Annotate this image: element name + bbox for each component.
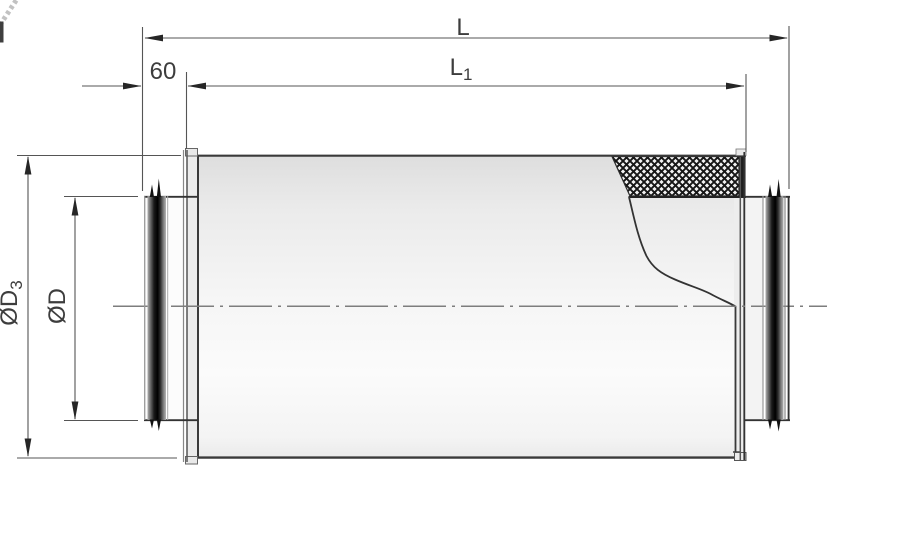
label-L: L: [456, 14, 469, 41]
insulation-hatch: [612, 152, 746, 198]
left-spigot-rib-band: [148, 196, 167, 420]
right-spigot-spike: [777, 420, 781, 432]
left-spigot-spike: [157, 420, 161, 432]
hatch-area: [612, 157, 739, 197]
dimension-casing-length: L1: [187, 54, 747, 152]
arrow-down-icon: [25, 439, 32, 458]
left-spigot-spike: [150, 185, 154, 198]
label-OD3: ØD3: [0, 280, 26, 325]
artifact-hatch-fragment: [0, 0, 17, 25]
corner-artifact: [0, 0, 17, 43]
label-L1: L1: [450, 54, 473, 84]
arrow-right-icon: [123, 83, 142, 90]
right-spigot-spike: [768, 420, 772, 430]
dimension-duct-diameter: ØD: [44, 197, 138, 421]
artifact-bar: [0, 22, 4, 43]
silencer-technical-drawing: L L1 60 ØD3 ØD: [0, 0, 900, 536]
casing-fill: [198, 156, 734, 458]
right-spigot-spike: [768, 185, 772, 198]
arrow-down-icon: [72, 402, 79, 421]
arrow-left-icon: [188, 83, 207, 90]
arrow-up-icon: [72, 197, 79, 216]
arrow-up-icon: [25, 156, 32, 175]
label-60: 60: [150, 58, 177, 85]
arrow-right-icon: [770, 35, 789, 42]
label-OD: ØD: [44, 288, 71, 324]
drawing-canvas: L L1 60 ØD3 ØD: [0, 0, 900, 536]
left-spigot-spike: [150, 420, 154, 429]
arrow-left-icon: [145, 35, 164, 42]
right-spigot-spike: [777, 179, 781, 197]
dimension-spigot-length: 60: [82, 58, 176, 89]
right-spigot-rib-band: [766, 196, 784, 420]
left-spigot-spike: [157, 179, 161, 198]
arrow-right-icon: [726, 83, 745, 90]
